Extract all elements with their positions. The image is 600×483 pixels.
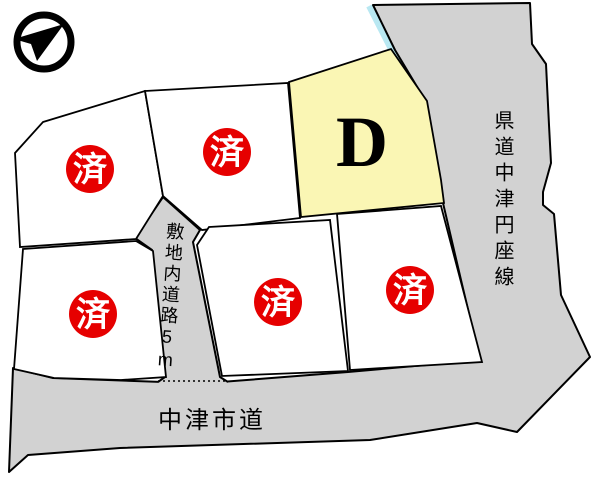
sold-badge-label: 済 (76, 296, 111, 334)
sold-badge-label: 済 (393, 272, 428, 310)
compass-icon (14, 15, 71, 69)
sold-badge: 済 (69, 290, 117, 338)
lot-map: 済 済 済 済 済 D 県道中津円座線 敷地内道路5m 中津市道 (0, 0, 600, 483)
sold-badge-label: 済 (261, 284, 296, 322)
sold-badge-label: 済 (73, 151, 108, 189)
sold-badge: 済 (254, 278, 302, 326)
lot-d-label: D (336, 102, 388, 182)
sold-badge-label: 済 (210, 134, 245, 172)
sold-badge: 済 (386, 266, 434, 314)
prefectural-road-label: 県道中津円座線 (488, 110, 517, 292)
sold-badge: 済 (66, 145, 114, 193)
city-road-label: 中津市道 (158, 400, 266, 435)
sold-badge: 済 (203, 128, 251, 176)
